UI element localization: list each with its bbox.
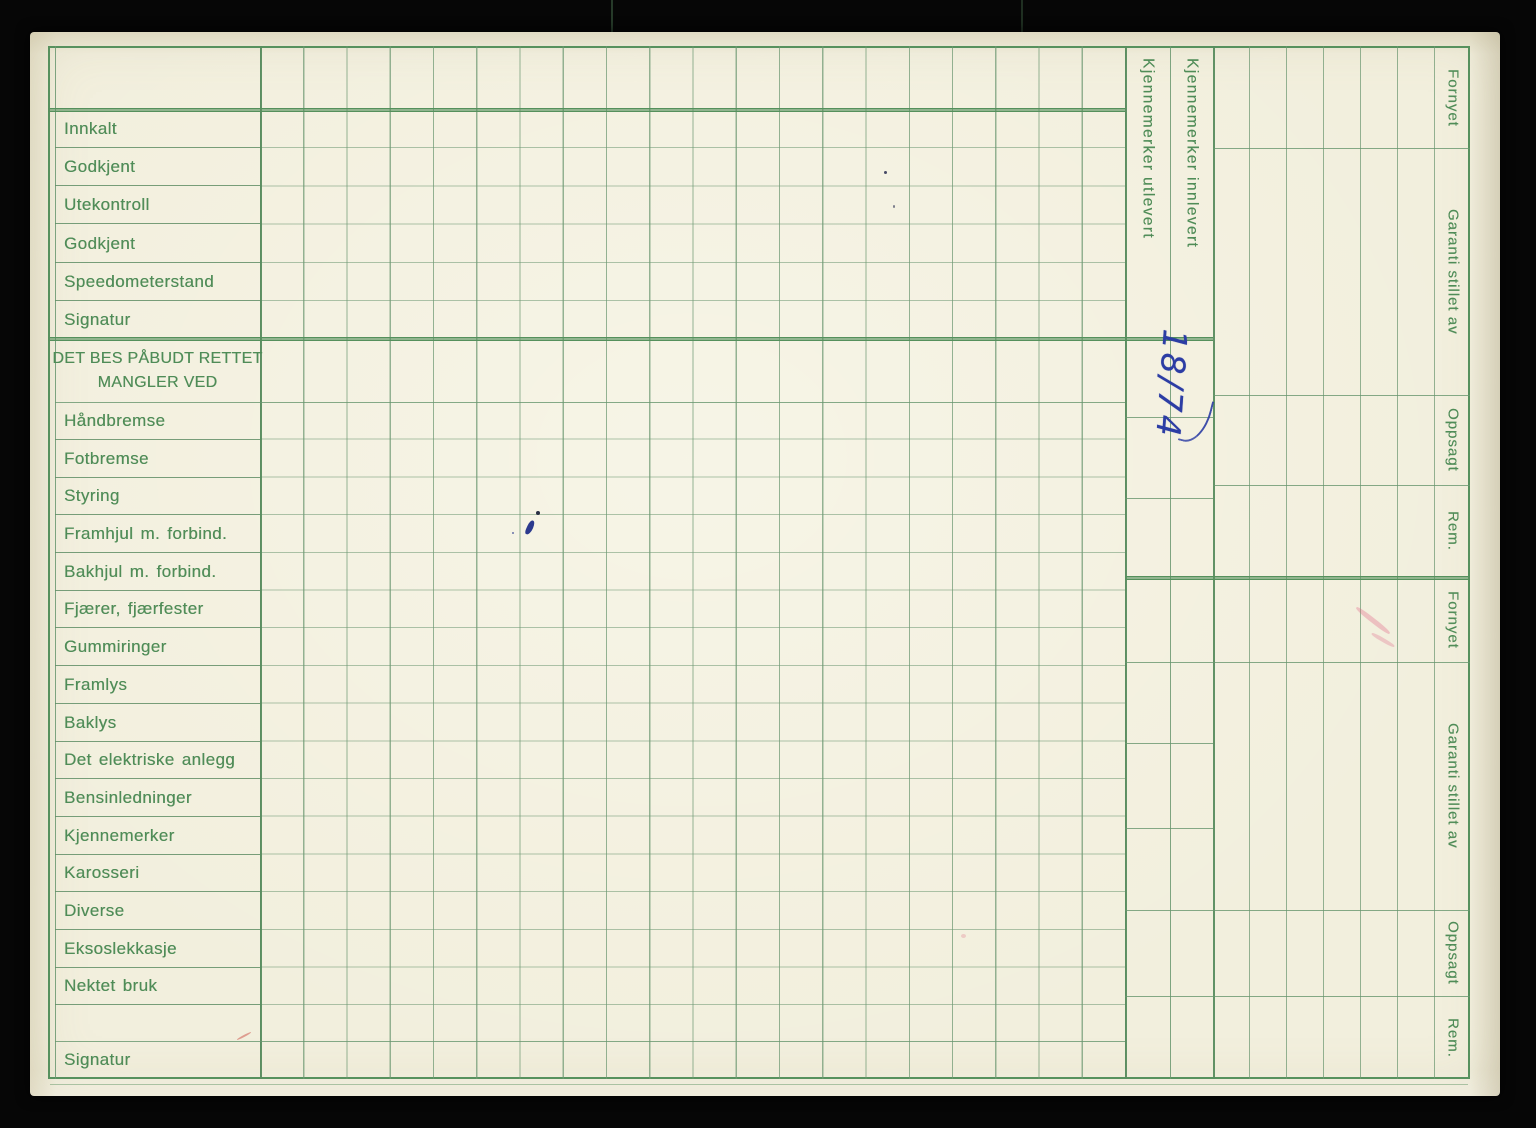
right-grid-vertical-lines [1213,46,1435,1079]
row-text: Baklys [64,713,116,733]
row-label: Bensinledninger [55,779,260,817]
row-text: Innkalt [64,119,117,139]
main-grid-row-lines-defects [260,402,1125,1042]
row-label: Framlys [55,666,260,704]
status-cell-garanti-2: Garanti stillet av [1436,662,1470,910]
row-text: Styring [64,486,120,506]
row-text: Gummiringer [64,637,167,657]
row-label: Framhjul m. forbind. [55,515,260,553]
row-text: Utekontroll [64,195,150,215]
scan-streak [611,0,613,34]
status-cell-fornyet-2: Fornyet [1436,578,1470,662]
row-text: Eksoslekkasje [64,939,177,959]
defect-header-line2: MANGLER VED [98,371,218,395]
ink-dot [893,205,895,208]
row-label: Kjennemerker [55,817,260,855]
row-text: Det elektriske anlegg [64,750,235,770]
row-label: Utekontroll [55,186,260,224]
defect-header-line1: DET BES PÅBUDT RETTET [52,347,262,371]
plate-columns-right-border [1213,46,1215,1079]
plate-column-label: Kjennemerker utlevert [1139,58,1157,239]
plate-cell-line [1125,498,1213,499]
status-cell-rem-2: Rem. [1436,996,1470,1079]
row-label: Baklys [55,704,260,742]
label-column-separator [260,46,262,1079]
row-text: Kjennemerker [64,826,175,846]
status-cell-oppsagt-1: Oppsagt [1436,395,1470,485]
status-label: Oppsagt [1445,921,1462,985]
status-row-line [1213,395,1470,396]
row-text: Framhjul m. forbind. [64,524,227,544]
ink-speck [512,532,514,534]
plate-cell-line [1125,743,1213,744]
ink-dot [884,171,887,174]
row-text: Speedometerstand [64,272,214,292]
row-label: Signatur [55,301,260,339]
status-row-line [1213,148,1470,149]
status-row-line [1213,485,1470,486]
status-label: Oppsagt [1445,408,1462,472]
row-label: Det elektriske anlegg [55,741,260,779]
row-text: Framlys [64,675,127,695]
status-label: Garanti stillet av [1445,723,1462,849]
row-text: Godkjent [64,157,135,177]
status-cell-fornyet-1: Fornyet [1436,48,1470,148]
row-text: Karosseri [64,863,139,883]
row-label: Diverse [55,892,260,930]
row-text: Diverse [64,901,124,921]
plate-cell-line [1125,828,1213,829]
row-text: Nektet bruk [64,976,157,996]
row-label: Godkjent [55,148,260,186]
row-label: Håndbremse [55,402,260,440]
row-label: Bakhjul m. forbind. [55,553,260,591]
status-label: Rem. [1445,1018,1462,1058]
status-label: Fornyet [1445,69,1462,127]
row-text: Bakhjul m. forbind. [64,562,216,582]
main-grid-row-lines-top [260,110,1125,338]
row-text: Håndbremse [64,411,165,431]
row-text: Godkjent [64,234,135,254]
pink-dot [961,934,966,938]
status-row-line [1125,996,1470,997]
row-text: Fotbremse [64,449,149,469]
status-label: Fornyet [1445,591,1462,649]
row-label: Speedometerstand [55,263,260,301]
status-cell-garanti-1: Garanti stillet av [1436,148,1470,395]
row-label: Styring [55,477,260,515]
status-label: Rem. [1445,511,1462,551]
status-cell-oppsagt-2: Oppsagt [1436,910,1470,996]
row-label: Fotbremse [55,440,260,478]
scan-streak [1021,0,1023,36]
row-text: Signatur [64,310,131,330]
plate-column-label: Kjennemerker innlevert [1183,58,1201,248]
row-label: Gummiringer [55,628,260,666]
signature-row-topline [55,1041,1125,1042]
status-row-line [1125,662,1470,663]
frame-inner-bottom-line [50,1084,1468,1085]
scanned-photo: Innkalt Godkjent Utekontroll Godkjent Sp… [0,0,1536,1128]
row-label: Signatur [55,1043,260,1077]
defect-section-header: DET BES PÅBUDT RETTET MANGLER VED [55,341,260,401]
row-text: Fjærer, fjærfester [64,599,204,619]
row-label: Innkalt [55,110,260,148]
row-label: Nektet bruk [55,967,260,1005]
right-halves-divider [1125,576,1470,580]
status-row-line [1125,910,1470,911]
row-text: Bensinledninger [64,788,192,808]
plate-column-utlevert: Kjennemerker utlevert [1125,58,1170,358]
row-label: Eksoslekkasje [55,930,260,968]
status-cell-rem-1: Rem. [1436,485,1470,576]
row-label: Fjærer, fjærfester [55,590,260,628]
row-text: Signatur [64,1050,131,1070]
plate-column-innlevert: Kjennemerker innlevert [1170,58,1213,358]
ink-dot [536,511,540,515]
status-label: Garanti stillet av [1445,209,1462,335]
row-label: Godkjent [55,225,260,263]
row-label: Karosseri [55,854,260,892]
